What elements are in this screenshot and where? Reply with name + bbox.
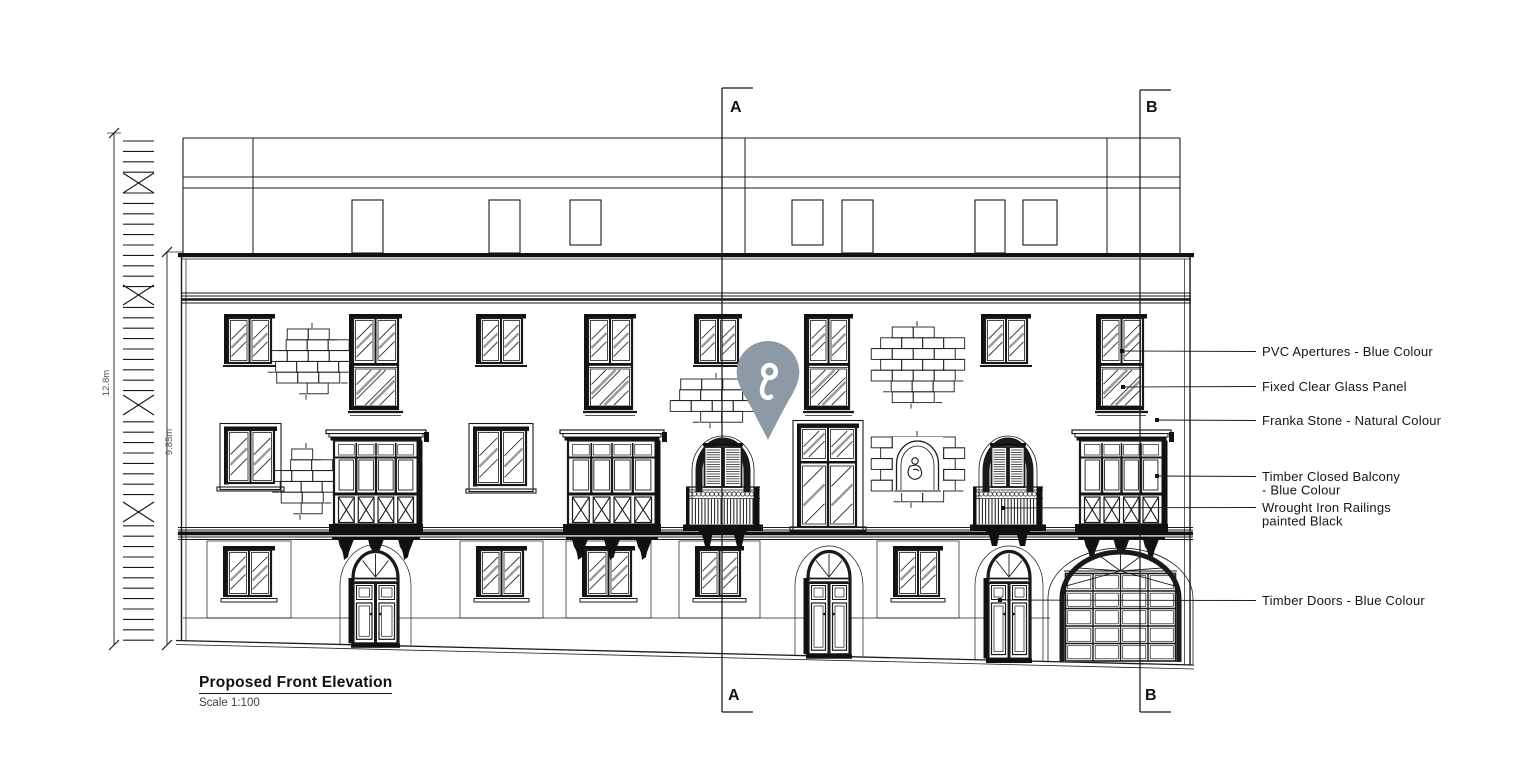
dimension-label: 9.85m: [164, 429, 175, 455]
annotation-label: PVC Apertures - Blue Colour: [1262, 344, 1433, 359]
annotation-franka-stone: Franka Stone - Natural Colour: [1155, 413, 1442, 428]
drawing-title: Proposed Front Elevation: [199, 674, 392, 694]
roof-level: [183, 138, 1180, 253]
open-balcony-2: [970, 436, 1046, 546]
statue-niche: [893, 437, 943, 493]
annotation-timber-balcony: Timber Closed Balcony- Blue Colour: [1155, 469, 1400, 498]
annotation-label: painted Black: [1262, 514, 1343, 529]
annotation-iron-railings: Wrought Iron Railingspainted Black: [1001, 500, 1391, 529]
section-marker-b-bottom: B: [1145, 687, 1157, 704]
levels-ruler: [123, 141, 154, 640]
annotation-label: Franka Stone - Natural Colour: [1262, 413, 1442, 428]
closed-timber-balcony-1: [326, 430, 429, 560]
timber-door-2: [795, 546, 863, 659]
garage-door: [1048, 548, 1193, 664]
title-block: Proposed Front Elevation Scale 1:100: [199, 674, 392, 709]
section-marker-a-top: A: [730, 99, 742, 116]
elevation-drawing-svg: AABBPVC Apertures - Blue ColourFixed Cle…: [0, 0, 1536, 783]
annotation-glass-panel: Fixed Clear Glass Panel: [1121, 379, 1407, 394]
location-pin-icon: [737, 341, 800, 440]
drawing-scale: Scale 1:100: [199, 697, 392, 709]
elevation-drawing: AABBPVC Apertures - Blue ColourFixed Cle…: [101, 88, 1442, 712]
elevation-sheet: AABBPVC Apertures - Blue ColourFixed Cle…: [0, 0, 1536, 783]
annotation-label: Timber Doors - Blue Colour: [1262, 593, 1425, 608]
closed-timber-balcony-3: [1072, 430, 1174, 560]
timber-door-3: [975, 546, 1043, 663]
timber-door-1: [340, 545, 411, 648]
section-marker-b-top: B: [1146, 99, 1158, 116]
section-marker-a-bottom: A: [728, 687, 740, 704]
annotation-label: Fixed Clear Glass Panel: [1262, 379, 1407, 394]
open-balcony-1: [683, 436, 763, 546]
annotation-label: - Blue Colour: [1262, 483, 1341, 498]
dimension-label: 12.8m: [101, 370, 112, 396]
closed-timber-balcony-2: [560, 430, 667, 560]
dimension-9-85m: 9.85m: [162, 247, 183, 650]
facade-shell: [176, 253, 1194, 669]
dimension-12-8m: 12.8m: [101, 128, 121, 650]
annotation-pvc-apertures: PVC Apertures - Blue Colour: [1120, 344, 1433, 359]
